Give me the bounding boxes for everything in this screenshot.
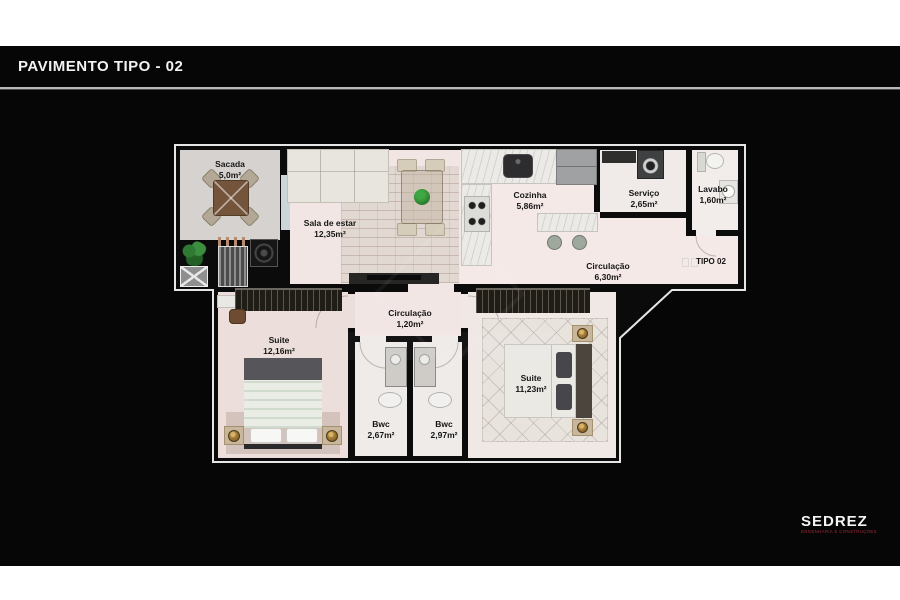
lamp-icon <box>577 422 588 433</box>
stairs-icon <box>218 246 248 287</box>
room-name: Circulação <box>586 261 629 271</box>
unit-type-label: TIPO 02 <box>696 257 726 267</box>
room-label-suite-2: Suite 11,23m² <box>515 373 546 395</box>
stool-icon <box>572 235 587 250</box>
dining-plant-icon <box>414 189 430 205</box>
room-name: Bwc <box>372 419 389 429</box>
logo-text-block: SEDREZ ENGENHARIA E CONSTRUÇÕES <box>801 514 900 536</box>
pillow-icon <box>556 352 572 378</box>
room-name: Sala de estar <box>304 218 356 228</box>
service-shelf-icon <box>602 151 636 163</box>
balcony-table-icon <box>213 180 249 216</box>
grill-icon <box>250 239 278 267</box>
room-label-cozinha: Cozinha 5,86m² <box>513 190 546 212</box>
toilet-icon <box>378 392 402 408</box>
bed-headboard-icon <box>244 358 322 380</box>
entry-door-icon <box>682 258 689 267</box>
logo-tagline: ENGENHARIA E CONSTRUÇÕES <box>801 530 877 534</box>
room-area: 6,30m² <box>595 272 622 282</box>
bed-blanket-icon <box>244 380 322 428</box>
stairs-balusters-icon <box>218 237 248 246</box>
lamp-icon <box>326 430 338 442</box>
room-area: 12,16m² <box>263 346 295 356</box>
elevator-shaft-icon <box>180 266 208 287</box>
room-label-servico: Serviço 2,65m² <box>629 188 660 210</box>
kitchen-island <box>537 213 598 232</box>
shower-drain-icon <box>390 354 401 365</box>
desk-chair-icon <box>229 309 246 324</box>
room-name: Suite <box>521 373 542 383</box>
room-name: Cozinha <box>513 190 546 200</box>
room-area: 2,97m² <box>431 430 458 440</box>
fridge-icon <box>556 149 597 185</box>
unit-type-text: TIPO 02 <box>696 257 726 266</box>
room-name: Sacada <box>215 159 245 169</box>
lamp-icon <box>228 430 240 442</box>
pillow-icon <box>250 428 282 443</box>
shower-icon <box>414 347 436 387</box>
room-label-bwc-2: Bwc 2,97m² <box>431 419 458 441</box>
room-area: 2,67m² <box>368 430 395 440</box>
washing-machine-icon <box>637 150 664 179</box>
room-label-circulacao-intima: Circulação 1,20m² <box>388 308 431 330</box>
stool-icon <box>547 235 562 250</box>
room-name: Bwc <box>435 419 452 429</box>
room-label-suite-1: Suite 12,16m² <box>263 335 295 357</box>
sofa-icon <box>287 149 389 203</box>
bed-headboard-icon <box>576 344 592 418</box>
shower-drain-icon <box>419 354 430 365</box>
room-name: Circulação <box>388 308 431 318</box>
room-area: 12,35m² <box>314 229 346 239</box>
pillow-icon <box>556 384 572 410</box>
room-label-lavabo: Lavabo 1,60m² <box>698 184 728 206</box>
shower-icon <box>385 347 407 387</box>
pillow-icon <box>286 428 318 443</box>
room-area: 11,23m² <box>515 384 546 394</box>
room-label-bwc-1: Bwc 2,67m² <box>368 419 395 441</box>
bed-base-icon <box>244 444 322 449</box>
company-logo: SEDREZ ENGENHARIA E CONSTRUÇÕES <box>797 512 897 538</box>
tv-icon <box>367 275 421 280</box>
room-area: 5,0m² <box>219 170 241 180</box>
room-label-sacada: Sacada 5,0m² <box>215 159 245 181</box>
stove-icon <box>464 196 490 232</box>
lamp-icon <box>577 328 588 339</box>
floorplan-base <box>0 0 900 600</box>
wardrobe-icon <box>476 288 590 313</box>
room-label-sala: Sala de estar 12,35m² <box>304 218 356 240</box>
dining-chair-icon <box>397 223 417 236</box>
logo-text: SEDREZ <box>801 514 900 529</box>
room-area: 5,86m² <box>517 201 544 211</box>
wardrobe-icon <box>235 288 342 311</box>
room-area: 2,65m² <box>631 199 658 209</box>
room-label-circulacao-social: Circulação 6,30m² <box>586 261 629 283</box>
room-name: Serviço <box>629 188 660 198</box>
toilet-tank-icon <box>697 152 706 172</box>
plant-icon <box>181 241 208 266</box>
slide: PAVIMENTO TIPO - 02 <box>0 0 900 600</box>
dining-chair-icon <box>425 223 445 236</box>
room-area: 1,20m² <box>397 319 424 329</box>
kitchen-sink-icon <box>503 154 533 178</box>
toilet-icon <box>706 153 724 169</box>
toilet-icon <box>428 392 452 408</box>
room-name: Suite <box>269 335 290 345</box>
room-area: 1,60m² <box>700 195 727 205</box>
room-name: Lavabo <box>698 184 728 194</box>
